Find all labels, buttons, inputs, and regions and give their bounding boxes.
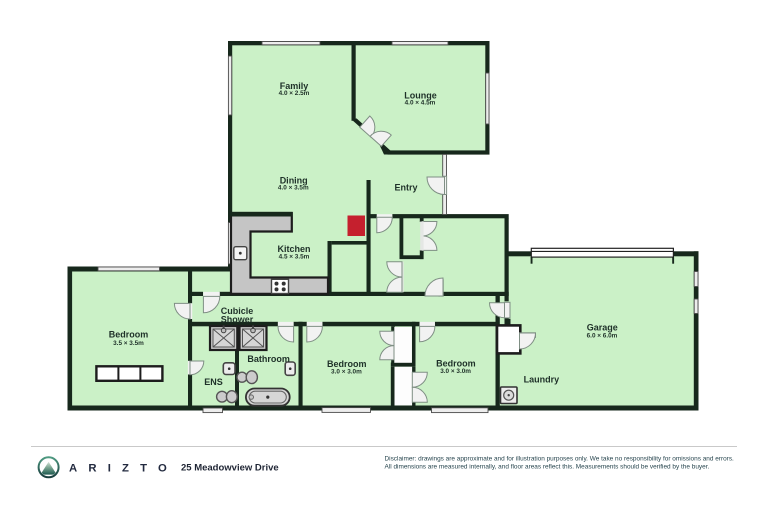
svg-text:4.5 × 3.5m: 4.5 × 3.5m [279, 253, 310, 260]
svg-text:Garage: Garage [587, 323, 618, 333]
svg-text:3.0 × 3.0m: 3.0 × 3.0m [440, 368, 471, 375]
svg-text:4.0 × 3.5m: 4.0 × 3.5m [278, 185, 309, 192]
svg-text:Entry: Entry [394, 182, 417, 192]
svg-text:Laundry: Laundry [524, 375, 560, 385]
svg-text:4.0 × 2.5m: 4.0 × 2.5m [279, 90, 310, 97]
svg-text:6.0 × 6.0m: 6.0 × 6.0m [587, 332, 618, 339]
svg-text:ENS: ENS [204, 377, 223, 387]
svg-text:All dimensions are measured in: All dimensions are measured internally, … [385, 463, 710, 470]
svg-text:Shower: Shower [221, 315, 254, 325]
svg-text:25 Meadowview Drive: 25 Meadowview Drive [181, 463, 279, 474]
svg-text:3.0 × 3.0m: 3.0 × 3.0m [331, 368, 362, 375]
svg-text:Bathroom: Bathroom [247, 354, 290, 364]
svg-text:3.5 × 3.5m: 3.5 × 3.5m [113, 340, 144, 347]
svg-text:Disclaimer: drawings are appro: Disclaimer: drawings are approximate and… [385, 456, 735, 463]
svg-text:4.0 × 4.5m: 4.0 × 4.5m [405, 99, 436, 106]
svg-text:Bedroom: Bedroom [109, 330, 149, 340]
svg-text:ARIZTO: ARIZTO [69, 462, 178, 474]
